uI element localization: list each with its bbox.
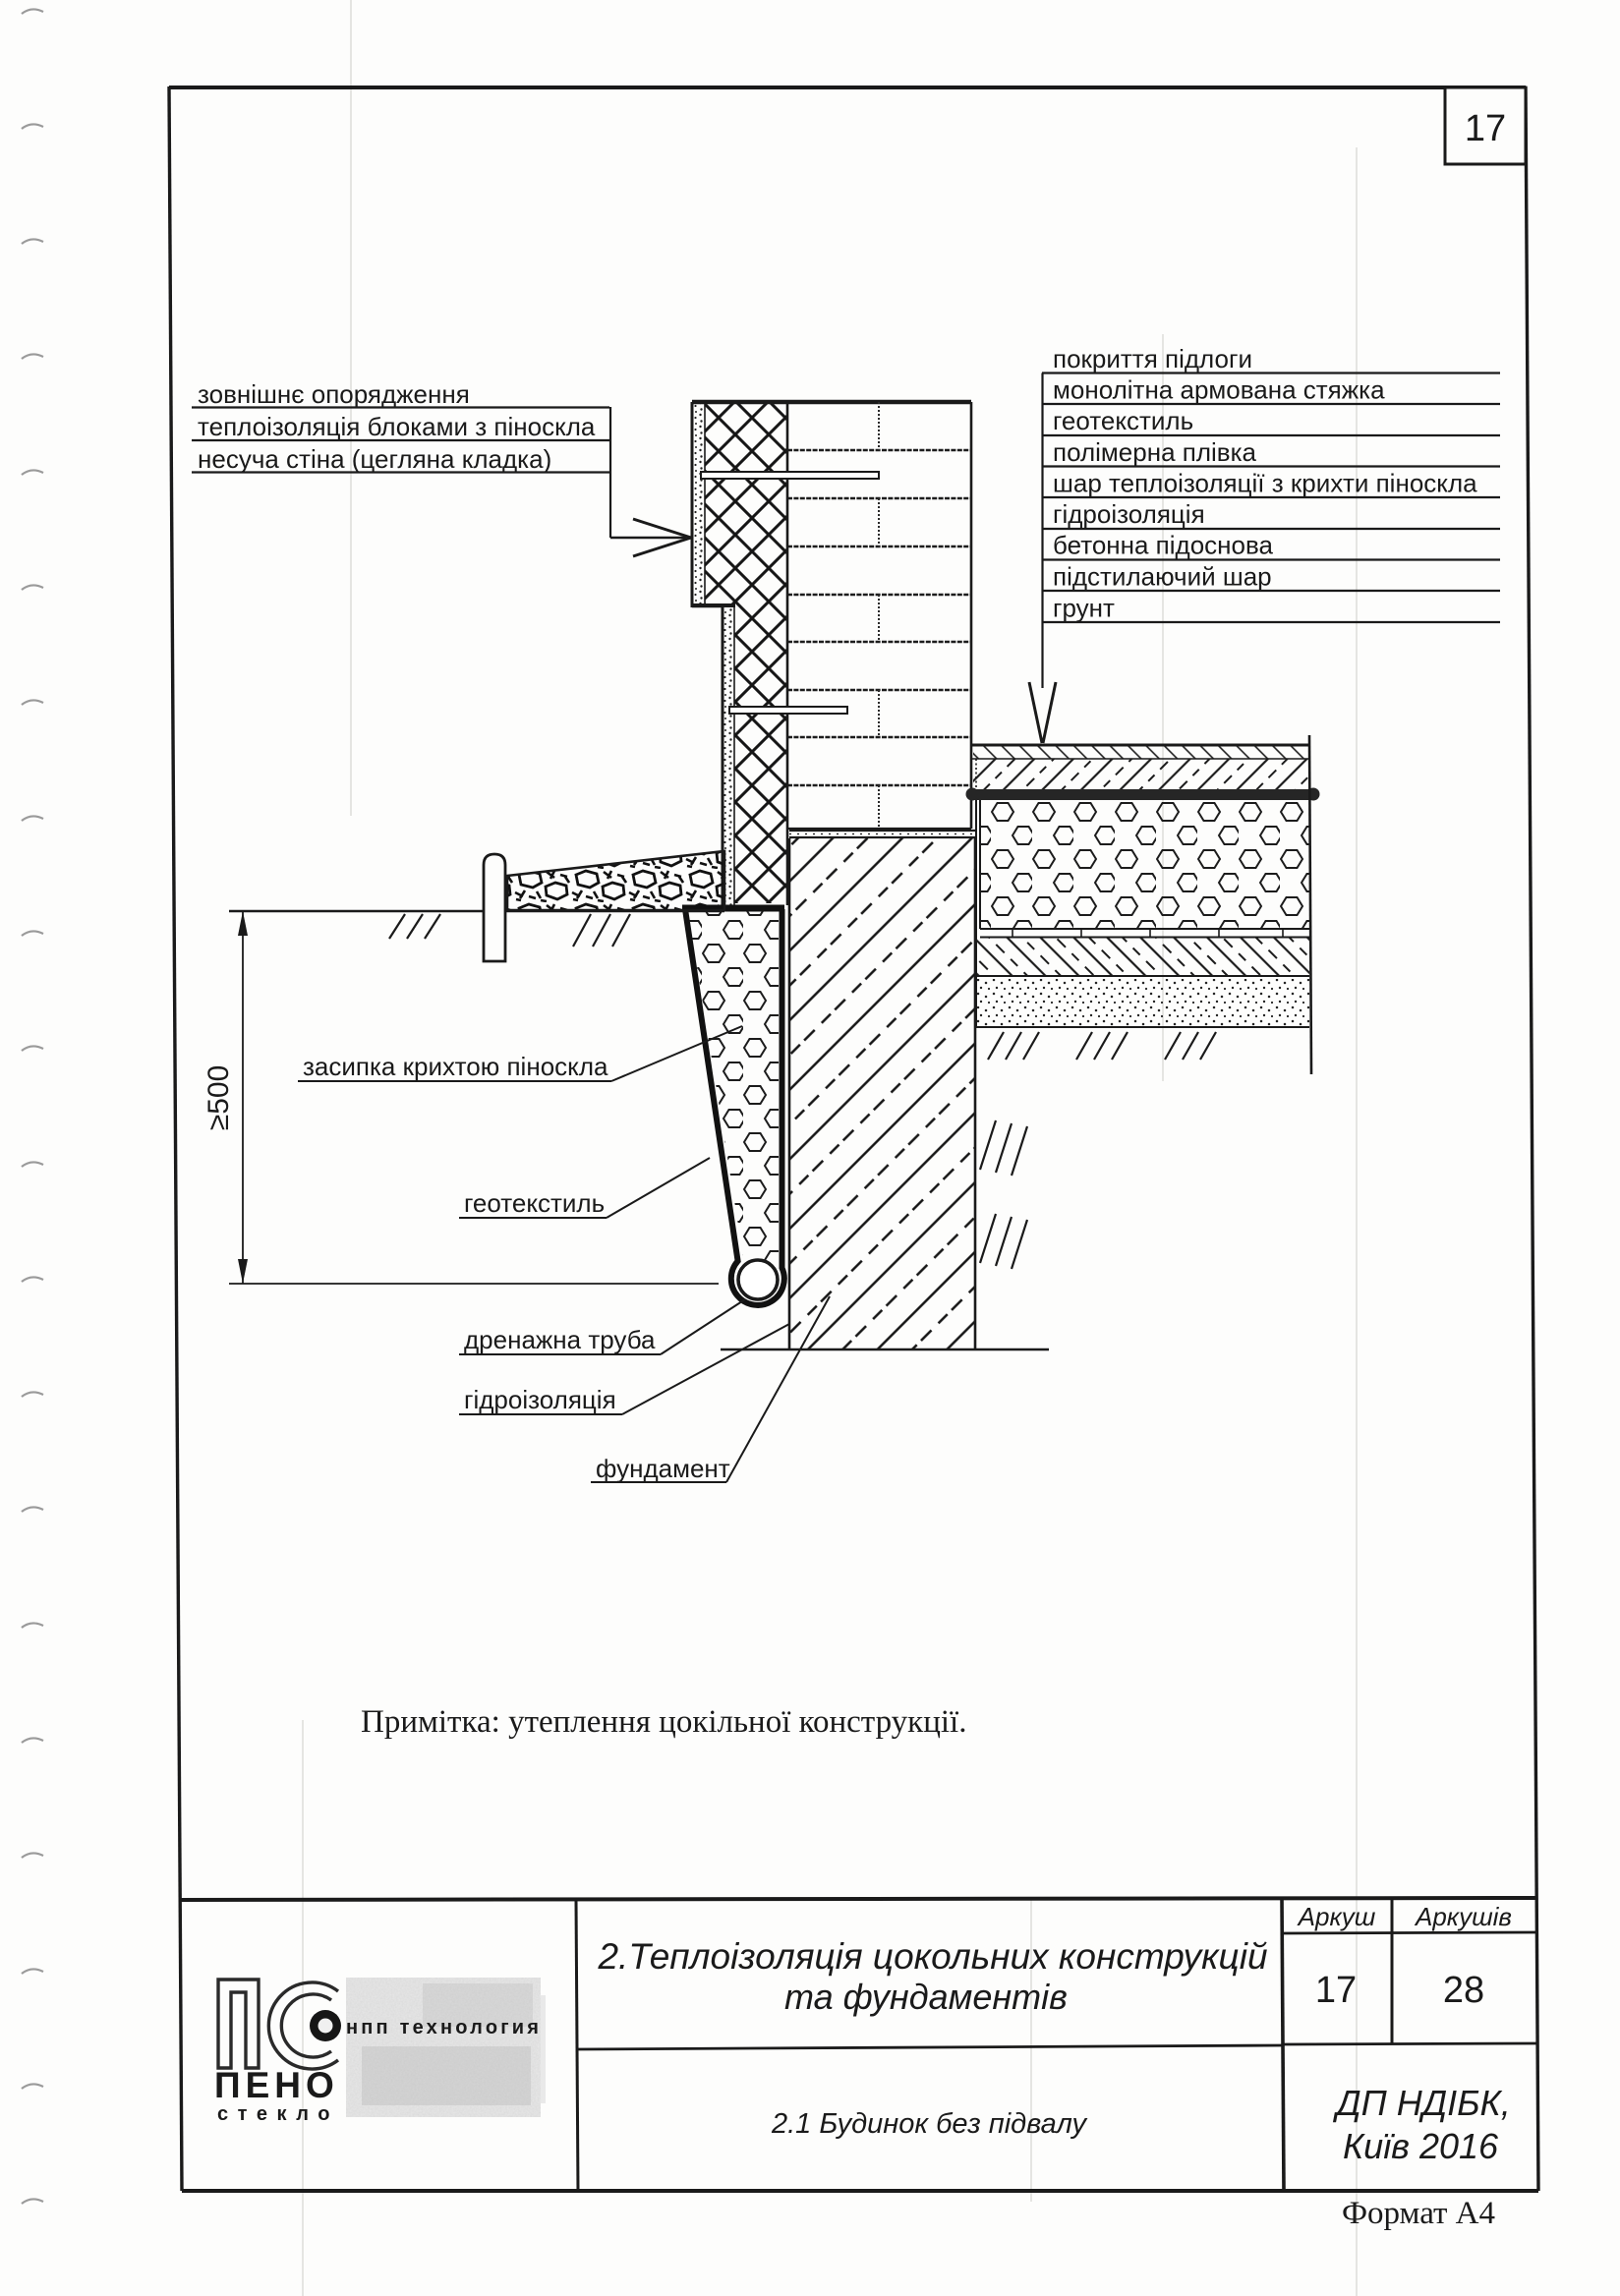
svg-text:дренажна труба: дренажна труба (464, 1325, 656, 1354)
svg-text:монолітна армована стяжка: монолітна армована стяжка (1053, 375, 1385, 405)
svg-text:28: 28 (1443, 1970, 1484, 2011)
svg-text:Аркушів: Аркушів (1414, 1902, 1512, 1931)
svg-text:фундамент: фундамент (596, 1454, 730, 1483)
svg-text:2.Теплоізоляція цокольних конс: 2.Теплоізоляція цокольних конструкцій (597, 1936, 1267, 1977)
svg-text:теплоізоляція блоками з піноск: теплоізоляція блоками з піноскла (198, 412, 596, 441)
svg-text:Київ 2016: Київ 2016 (1343, 2126, 1499, 2166)
svg-text:геотекстиль: геотекстиль (464, 1188, 605, 1218)
svg-text:грунт: грунт (1053, 594, 1115, 623)
svg-text:≥500: ≥500 (202, 1065, 235, 1131)
svg-text:шар теплоізоляції з крихти пін: шар теплоізоляції з крихти піноскла (1053, 469, 1477, 498)
svg-text:гідроізоляція: гідроізоляція (464, 1385, 616, 1414)
svg-text:Аркуш: Аркуш (1297, 1902, 1376, 1931)
svg-text:ДП НДІБК,: ДП НДІБК, (1332, 2083, 1510, 2123)
svg-text:нпп технология: нпп технология (346, 2017, 542, 2038)
svg-text:бетонна підоснова: бетонна підоснова (1053, 531, 1273, 560)
svg-text:ПЕНО: ПЕНО (214, 2065, 339, 2105)
svg-text:засипка крихтою піноскла: засипка крихтою піноскла (303, 1052, 608, 1081)
svg-text:та фундаментів: та фундаментів (784, 1977, 1068, 2017)
svg-text:Формат А4: Формат А4 (1342, 2196, 1495, 2231)
svg-text:зовнішнє опорядження: зовнішнє опорядження (198, 379, 470, 409)
svg-text:17: 17 (1315, 1970, 1357, 2011)
svg-text:покриття підлоги: покриття підлоги (1053, 344, 1252, 373)
svg-text:2.1 Будинок без підвалу: 2.1 Будинок без підвалу (771, 2108, 1088, 2140)
svg-text:17: 17 (1465, 108, 1506, 149)
svg-text:Примітка: утеплення цокільної: Примітка: утеплення цокільної конструкці… (361, 1704, 966, 1740)
svg-text:полімерна плівка: полімерна плівка (1053, 437, 1257, 467)
svg-text:геотекстиль: геотекстиль (1053, 406, 1193, 435)
svg-text:стекло: стекло (217, 2103, 339, 2125)
svg-text:гідроізоляція: гідроізоляція (1053, 499, 1205, 529)
svg-text:несуча стіна (цегляна кладка): несуча стіна (цегляна кладка) (198, 444, 551, 474)
svg-text:підстилаючий шар: підстилаючий шар (1053, 562, 1272, 592)
